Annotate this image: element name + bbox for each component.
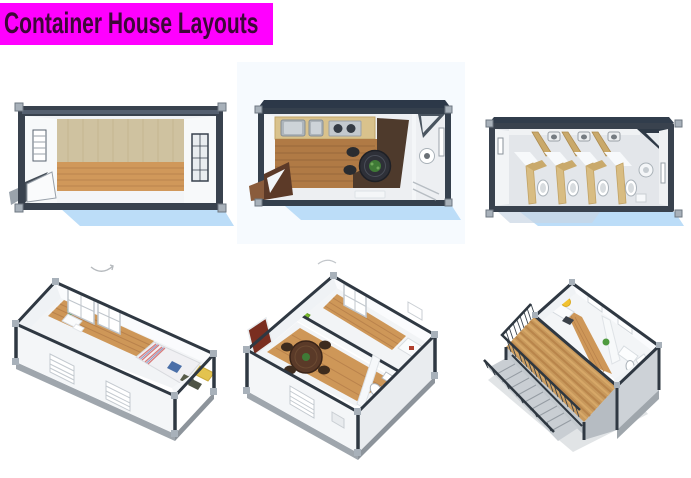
page-canvas: Container House Layouts xyxy=(0,0,691,478)
plant xyxy=(603,339,610,346)
end-window xyxy=(439,128,444,156)
floor-mat xyxy=(355,191,385,198)
page-title: Container House Layouts xyxy=(4,7,258,41)
wood-back-wall xyxy=(57,119,184,162)
roof-edge xyxy=(489,117,674,123)
layout-empty-unit xyxy=(8,92,236,238)
shadow xyxy=(60,208,234,226)
kitchen-item xyxy=(409,346,414,350)
bathroom-wall xyxy=(412,114,416,200)
chair xyxy=(347,147,360,157)
layout-toilet-unit xyxy=(480,106,688,232)
roof-edge xyxy=(258,100,451,108)
layout-two-room-unit xyxy=(240,260,455,478)
cistern xyxy=(636,194,646,202)
title-banner: Container House Layouts xyxy=(0,3,273,45)
layout-kitchen-unit xyxy=(237,62,465,244)
end-window xyxy=(661,163,665,183)
table-plant xyxy=(369,160,381,172)
side-window xyxy=(498,138,503,154)
layout-two-storey-unit xyxy=(478,262,690,474)
wood-floor xyxy=(57,162,184,191)
chair xyxy=(344,165,357,175)
layout-bedroom-unit xyxy=(6,262,238,474)
window-slit xyxy=(408,302,422,320)
table-plant xyxy=(302,353,310,361)
louver-window xyxy=(33,130,46,161)
shadow xyxy=(285,206,461,220)
